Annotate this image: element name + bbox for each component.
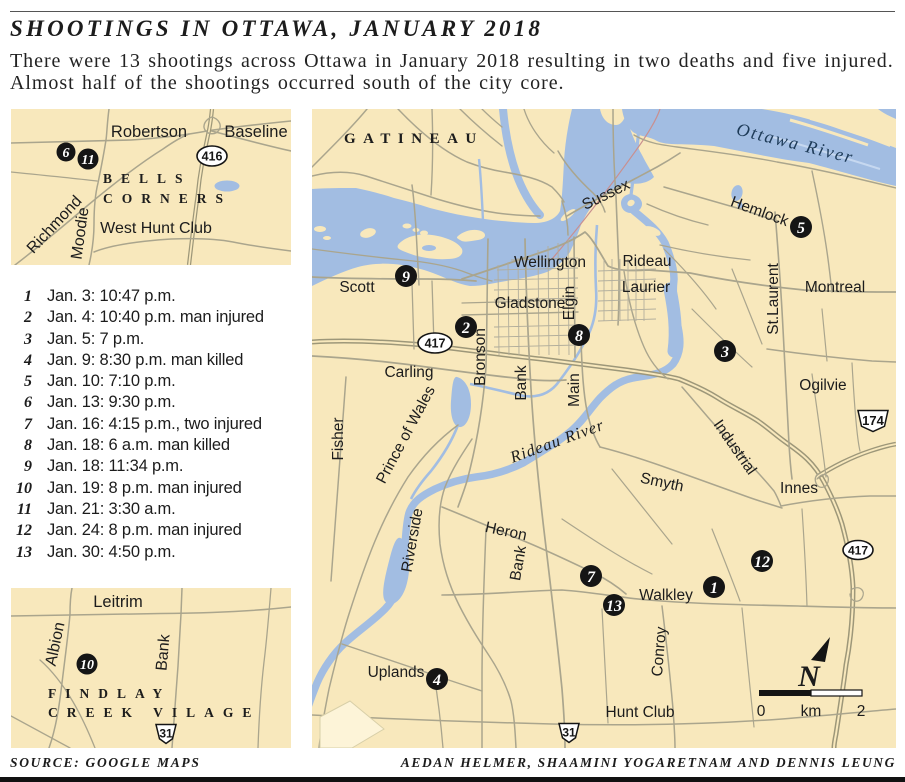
- svg-text:Bronson: Bronson: [472, 328, 489, 386]
- svg-text:Montreal: Montreal: [805, 279, 865, 296]
- svg-text:12: 12: [754, 554, 770, 571]
- svg-text:Walkley: Walkley: [639, 587, 693, 604]
- svg-text:Rideau: Rideau: [622, 253, 671, 270]
- svg-text:Gladstone: Gladstone: [495, 295, 566, 312]
- svg-text:BELLS: BELLS: [103, 171, 192, 186]
- svg-text:GATINEAU: GATINEAU: [344, 131, 484, 147]
- svg-text:1: 1: [710, 580, 718, 597]
- svg-text:31: 31: [562, 726, 576, 740]
- svg-text:2: 2: [461, 320, 470, 337]
- svg-text:13: 13: [606, 598, 622, 615]
- svg-text:Leitrim: Leitrim: [93, 593, 143, 611]
- svg-text:Laurier: Laurier: [622, 279, 670, 296]
- svg-text:416: 416: [202, 150, 223, 164]
- svg-text:Innes: Innes: [780, 480, 818, 497]
- svg-text:Carling: Carling: [384, 364, 433, 381]
- svg-text:417: 417: [848, 543, 868, 557]
- svg-text:West Hunt Club: West Hunt Club: [100, 220, 212, 237]
- svg-text:Wellington: Wellington: [514, 254, 586, 271]
- svg-text:417: 417: [425, 337, 446, 351]
- svg-text:7: 7: [587, 569, 596, 586]
- svg-text:8: 8: [575, 328, 583, 345]
- svg-text:St.Laurent: St.Laurent: [765, 263, 782, 335]
- svg-text:Baseline: Baseline: [224, 123, 287, 141]
- svg-text:4: 4: [432, 672, 441, 689]
- svg-text:0: 0: [757, 703, 766, 720]
- svg-text:Elgin: Elgin: [561, 286, 578, 320]
- svg-text:2: 2: [857, 703, 866, 720]
- svg-text:Ogilvie: Ogilvie: [799, 377, 846, 394]
- svg-text:Bank: Bank: [513, 365, 530, 401]
- svg-text:Robertson: Robertson: [111, 123, 187, 141]
- svg-text:5: 5: [797, 220, 805, 237]
- svg-text:6: 6: [63, 146, 70, 161]
- svg-text:3: 3: [720, 344, 729, 361]
- svg-text:Hunt Club: Hunt Club: [606, 704, 675, 721]
- svg-text:10: 10: [80, 658, 94, 673]
- svg-text:31: 31: [159, 727, 173, 741]
- svg-text:Bank: Bank: [153, 633, 173, 672]
- svg-text:CREEK VILAGE: CREEK VILAGE: [48, 705, 260, 720]
- svg-text:km: km: [801, 703, 822, 720]
- svg-text:Main: Main: [566, 373, 583, 407]
- svg-text:FINDLAY: FINDLAY: [48, 686, 171, 701]
- svg-text:11: 11: [81, 153, 94, 168]
- svg-text:CORNERS: CORNERS: [103, 191, 232, 206]
- svg-text:N: N: [797, 660, 821, 693]
- svg-text:Scott: Scott: [339, 279, 375, 296]
- svg-text:Fisher: Fisher: [330, 417, 347, 460]
- svg-text:9: 9: [402, 269, 410, 286]
- svg-text:Uplands: Uplands: [368, 664, 425, 681]
- svg-text:174: 174: [862, 413, 884, 428]
